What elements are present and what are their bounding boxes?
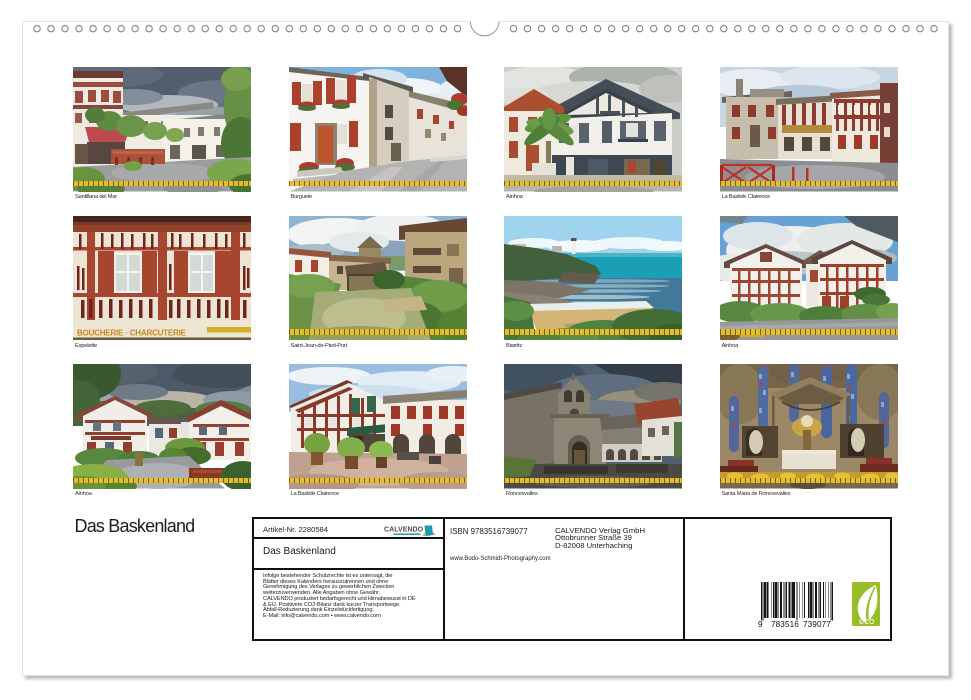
svg-text:CALVENDO: CALVENDO xyxy=(384,526,424,533)
svg-text:783516: 783516 xyxy=(771,620,799,629)
svg-text:eco: eco xyxy=(859,616,874,626)
svg-text:BOUCHERIE · CHARCUTERIE: BOUCHERIE · CHARCUTERIE xyxy=(77,328,187,337)
svg-text:9: 9 xyxy=(758,620,763,629)
svg-text:739077: 739077 xyxy=(803,620,831,629)
